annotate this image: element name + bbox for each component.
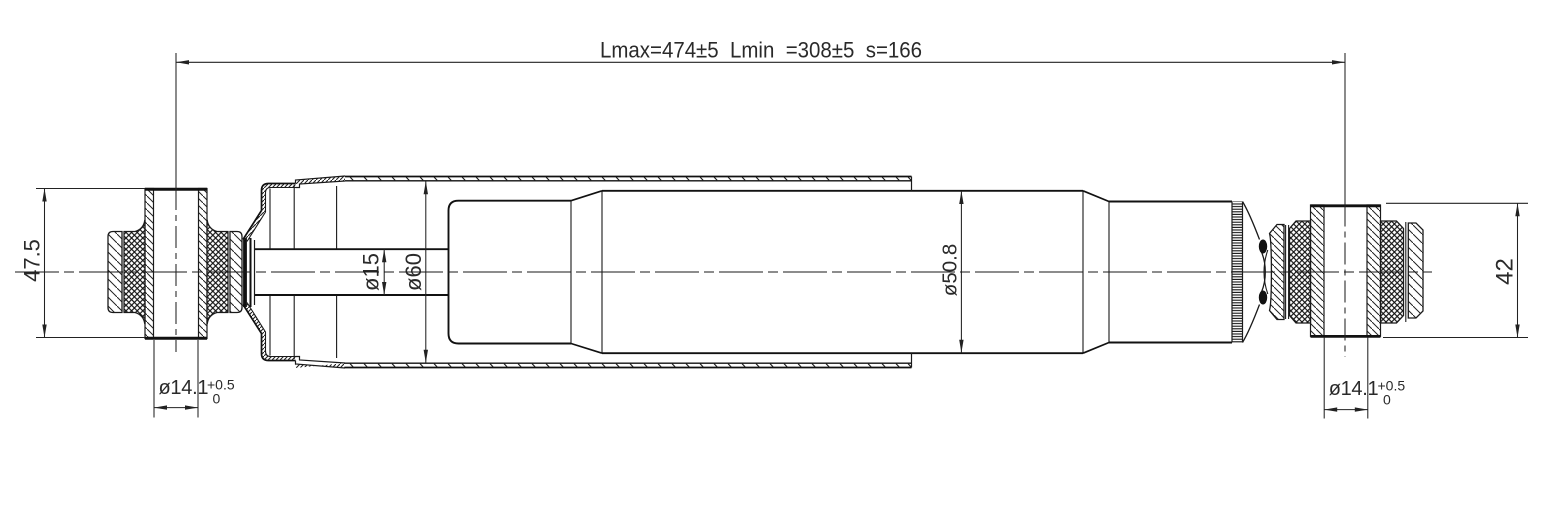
svg-text:ø14.1: ø14.1 [159, 377, 209, 399]
svg-text:+0.5: +0.5 [1378, 378, 1406, 394]
svg-text:+0.5: +0.5 [207, 377, 235, 393]
svg-text:42: 42 [1492, 258, 1519, 285]
svg-text:47.5: 47.5 [20, 239, 45, 282]
svg-text:ø14.1: ø14.1 [1329, 378, 1379, 400]
svg-text:0: 0 [1383, 392, 1391, 408]
svg-text:ø50.8: ø50.8 [939, 244, 962, 296]
svg-text:0: 0 [213, 391, 221, 407]
svg-text:Lmax=474±5 Lmin =308±5 s=16: Lmax=474±5 Lmin =308±5 s=166 [600, 38, 922, 63]
